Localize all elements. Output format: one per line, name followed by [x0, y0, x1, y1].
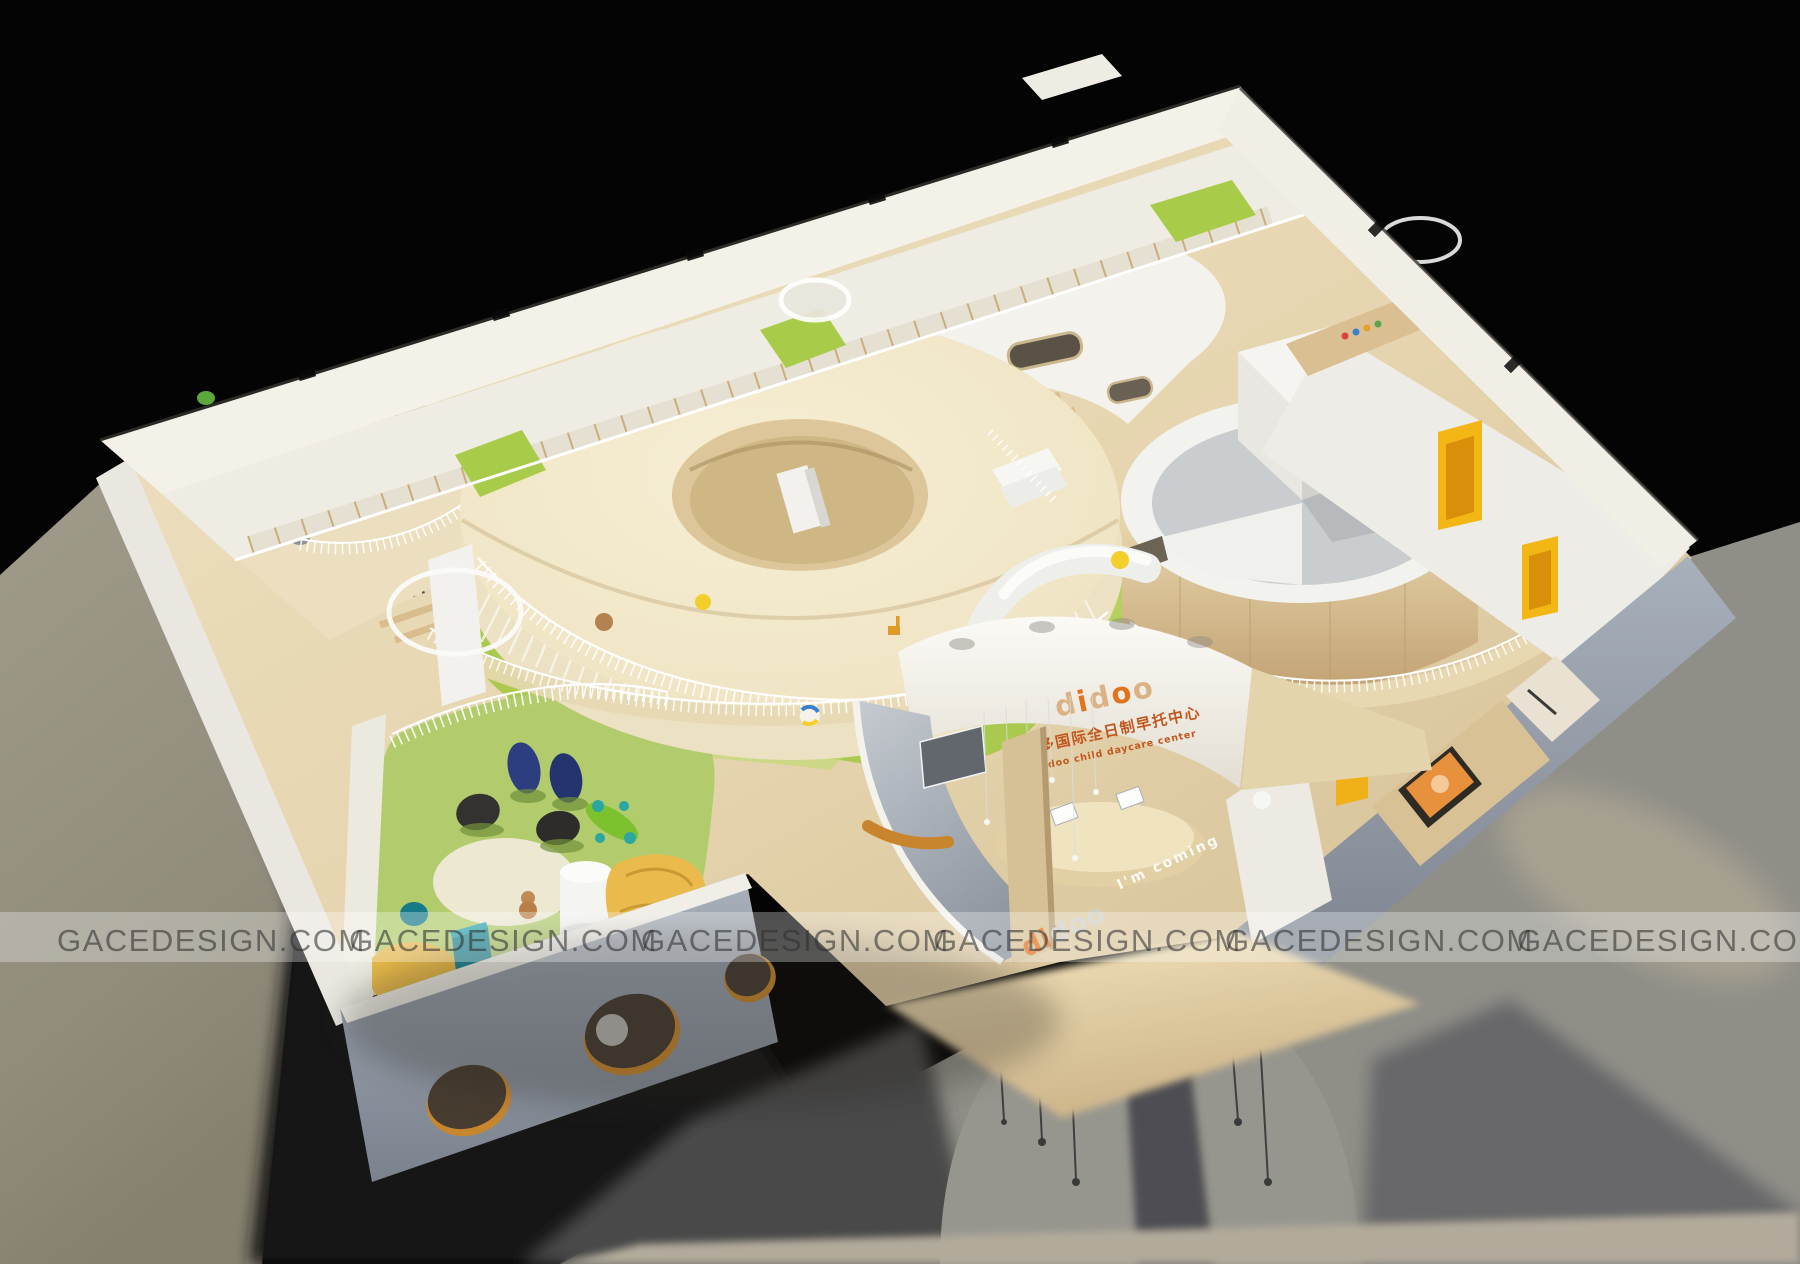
teddy-toy [595, 613, 613, 631]
watermark-text: GACEDESIGN.COM [641, 923, 950, 958]
watermark-text: GACEDESIGN.COM [57, 923, 366, 958]
watermark-text: GACEDESIGN.COM [933, 923, 1242, 958]
yellow-door-2-inner [1529, 550, 1551, 610]
watermark-text: GACEDESIGN.COM [1225, 923, 1534, 958]
watermark-band: GACEDESIGN.COM GACEDESIGN.COM GACEDESIGN… [0, 912, 1800, 962]
watermark-text: GACEDESIGN.COM [349, 923, 658, 958]
watermark-text: GACEDESIGN.COM [1517, 923, 1800, 958]
slide-ball [1111, 551, 1129, 569]
beach-ball [800, 706, 820, 726]
plant [197, 391, 215, 405]
yellow-ball [695, 594, 711, 610]
daycare-3d-render: didoo 迪多国际全日制早托中心 Didoo child daycare ce… [0, 0, 1800, 1264]
render-scene: didoo 迪多国际全日制早托中心 Didoo child daycare ce… [0, 0, 1800, 1264]
tv-image [1431, 775, 1449, 793]
spiral-stair [781, 280, 849, 320]
white-chair [1253, 791, 1271, 809]
yellow-door-1-inner [1446, 436, 1474, 520]
